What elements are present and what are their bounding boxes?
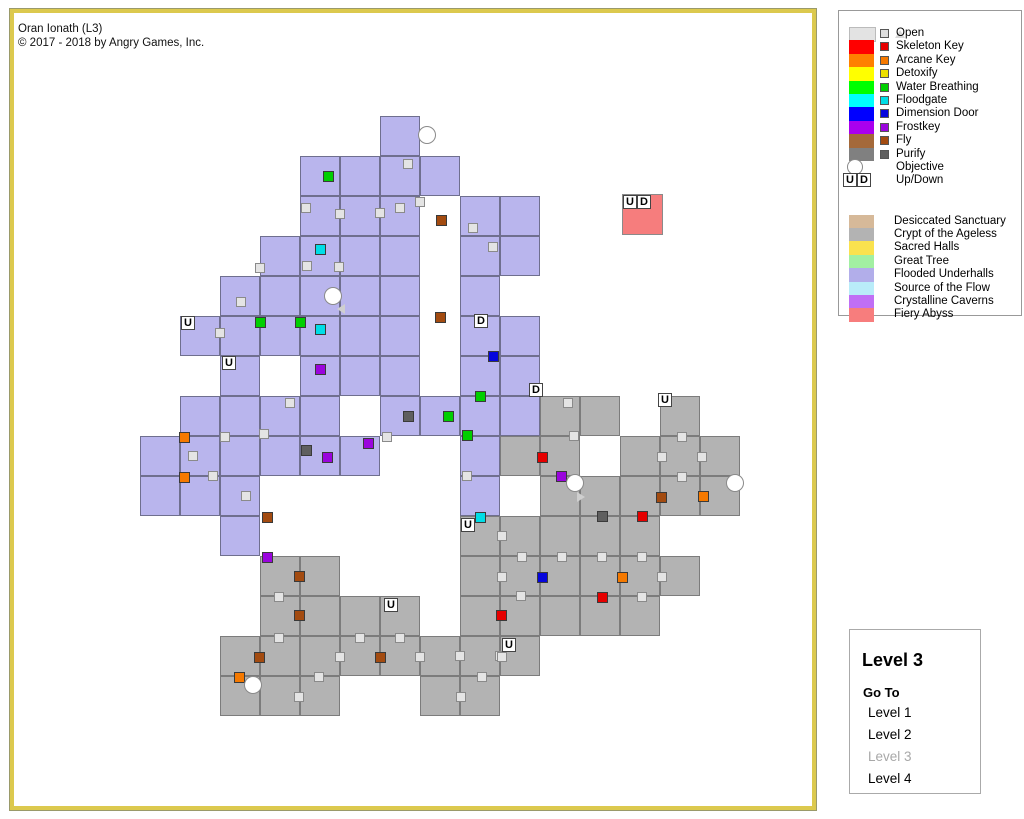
legend-swatch-small (880, 56, 889, 65)
legend-item-open: Open (839, 27, 1021, 40)
goto-level-4[interactable]: Level 4 (868, 768, 980, 790)
stair-label-u: U (502, 638, 516, 652)
door-open (697, 452, 707, 462)
map-room-flooded (260, 316, 300, 356)
legend-item-arcane-key: Arcane Key (839, 54, 1021, 67)
map-room-flooded (500, 236, 540, 276)
map-room-flooded (300, 396, 340, 436)
goto-level-3: Level 3 (868, 746, 980, 768)
legend-swatch-large (849, 54, 874, 67)
map-room-crypt (500, 436, 540, 476)
legend-area-swatch (849, 282, 874, 295)
legend-item-skeleton-key: Skeleton Key (839, 40, 1021, 53)
door-purify (403, 411, 414, 422)
map-room-flooded (500, 316, 540, 356)
map-room-flooded (340, 236, 380, 276)
door-purify (301, 445, 312, 456)
map-room-flooded (340, 156, 380, 196)
legend-area-section: Desiccated SanctuaryCrypt of the Ageless… (839, 188, 1021, 322)
door-open (517, 552, 527, 562)
legend-area-swatch (849, 268, 874, 281)
door-skeleton (637, 511, 648, 522)
legend-area-source-of-the-flow: Source of the Flow (839, 282, 1021, 295)
stair-label-u: U (384, 598, 398, 612)
legend-area-crypt-of-the-ageless: Crypt of the Ageless (839, 228, 1021, 241)
map-room-crypt (620, 516, 660, 556)
door-open (597, 552, 607, 562)
objective-circle (726, 474, 744, 492)
map-room-flooded (380, 116, 420, 156)
map-room-crypt (300, 636, 340, 676)
map-room-flooded (380, 396, 420, 436)
door-fly (656, 492, 667, 503)
door-open (355, 633, 365, 643)
legend-area-label: Fiery Abyss (894, 308, 953, 321)
legend-item-up-down: UDUp/Down (839, 174, 1021, 187)
map-room-flooded (140, 436, 180, 476)
map-room-flooded (380, 276, 420, 316)
stair-label-d: D (529, 383, 543, 397)
map-room-flooded (460, 436, 500, 476)
legend-item-label: Up/Down (896, 174, 943, 187)
legend-door-section: OpenSkeleton KeyArcane KeyDetoxifyWater … (839, 11, 1021, 188)
legend-swatch-large (849, 121, 874, 134)
legend-item-label: Floodgate (896, 94, 947, 107)
door-frostkey (315, 364, 326, 375)
map-room-flooded (420, 396, 460, 436)
door-dimension (488, 351, 499, 362)
door-open (456, 692, 466, 702)
map-room-crypt (420, 636, 460, 676)
door-arcane (179, 472, 190, 483)
door-arcane (179, 432, 190, 443)
legend-area-swatch (849, 215, 874, 228)
legend-item-label: Open (896, 27, 924, 40)
legend-area-swatch (849, 295, 874, 308)
door-skeleton (496, 610, 507, 621)
map-room-flooded (220, 476, 260, 516)
map-room-crypt (460, 596, 500, 636)
door-purify (597, 511, 608, 522)
legend-area-label: Desiccated Sanctuary (894, 215, 1006, 228)
legend-swatch-small (880, 69, 889, 78)
door-open (657, 452, 667, 462)
goto-level-2[interactable]: Level 2 (868, 724, 980, 746)
door-open (563, 398, 573, 408)
door-open (516, 591, 526, 601)
legend-swatch-small (880, 123, 889, 132)
door-arcane (617, 572, 628, 583)
map-room-flooded (300, 356, 340, 396)
legend-area-label: Crystalline Caverns (894, 295, 994, 308)
door-open (285, 398, 295, 408)
map-room-flooded (460, 476, 500, 516)
map-room-flooded (340, 196, 380, 236)
door-open (335, 209, 345, 219)
door-open (497, 572, 507, 582)
objective-circle (418, 126, 436, 144)
stair-label-u: U (181, 316, 195, 330)
map-room-crypt (300, 556, 340, 596)
door-water (443, 411, 454, 422)
door-open (395, 633, 405, 643)
door-open (557, 552, 567, 562)
legend-swatch-small (880, 109, 889, 118)
legend-item-frostkey: Frostkey (839, 121, 1021, 134)
legend-area-label: Sacred Halls (894, 241, 959, 254)
door-open (403, 159, 413, 169)
door-fly (436, 215, 447, 226)
legend-area-label: Flooded Underhalls (894, 268, 994, 281)
door-frostkey (322, 452, 333, 463)
door-open (334, 262, 344, 272)
map-room-flooded (300, 156, 340, 196)
legend-area-swatch (849, 228, 874, 241)
legend-item-fly: Fly (839, 134, 1021, 147)
map-room-flooded (460, 356, 500, 396)
map-room-flooded (340, 356, 380, 396)
map-room-flooded (380, 316, 420, 356)
legend-swatch-large (849, 107, 874, 120)
objective-circle (324, 287, 342, 305)
door-open (488, 242, 498, 252)
goto-level-1[interactable]: Level 1 (868, 702, 980, 724)
door-open (335, 652, 345, 662)
legend-swatch-small (880, 96, 889, 105)
legend-item-detoxify: Detoxify (839, 67, 1021, 80)
door-open (468, 223, 478, 233)
legend-swatch-small (880, 29, 889, 38)
map-room-flooded (260, 236, 300, 276)
door-skeleton (537, 452, 548, 463)
map-room-crypt (420, 676, 460, 716)
door-water (323, 171, 334, 182)
legend-area-desiccated-sanctuary: Desiccated Sanctuary (839, 215, 1021, 228)
door-water (475, 391, 486, 402)
legend-area-swatch (849, 308, 874, 321)
door-open (677, 472, 687, 482)
door-open (637, 592, 647, 602)
door-open (294, 692, 304, 702)
door-open (259, 429, 269, 439)
map-room-crypt (540, 516, 580, 556)
door-fly (294, 610, 305, 621)
map-room-crypt (580, 516, 620, 556)
stair-label-u: U (623, 195, 637, 209)
door-open (415, 197, 425, 207)
legend-area-label: Source of the Flow (894, 282, 990, 295)
map-room-flooded (380, 356, 420, 396)
map-room-crypt (620, 476, 660, 516)
up-box: U (843, 173, 857, 187)
dungeon-map-app: Oran Ionath (L3) © 2017 - 2018 by Angry … (0, 0, 1024, 819)
legend-swatch-large (849, 134, 874, 147)
legend-item-label: Dimension Door (896, 107, 978, 120)
legend-item-label: Detoxify (896, 67, 938, 80)
door-arcane (234, 672, 245, 683)
legend-area-swatch (849, 255, 874, 268)
map-room-flooded (300, 436, 340, 476)
door-floodgate (315, 324, 326, 335)
map-room-flooded (420, 156, 460, 196)
door-open (215, 328, 225, 338)
updown-icon: UD (843, 174, 871, 186)
door-water (295, 317, 306, 328)
map-room-crypt (540, 396, 580, 436)
map-room-flooded (140, 476, 180, 516)
map-room-crypt (540, 596, 580, 636)
map-room-crypt (460, 556, 500, 596)
map-room-flooded (380, 196, 420, 236)
goto-label: Go To (863, 685, 980, 700)
legend-item-water-breathing: Water Breathing (839, 81, 1021, 94)
legend-item-label: Frostkey (896, 121, 940, 134)
door-frostkey (262, 552, 273, 563)
legend-area-label: Great Tree (894, 255, 949, 268)
map-room-flooded (340, 436, 380, 476)
legend-swatch-small (880, 136, 889, 145)
objective-circle (244, 676, 262, 694)
door-open (208, 471, 218, 481)
legend-area-great-tree: Great Tree (839, 255, 1021, 268)
door-open (677, 432, 687, 442)
objective-circle (566, 474, 584, 492)
open-triangle-right (577, 492, 585, 502)
map-room-flooded (260, 436, 300, 476)
map-room-flooded (500, 396, 540, 436)
door-water (255, 317, 266, 328)
level-panel: Level 3 Go To Level 1Level 2Level 3Level… (849, 629, 981, 794)
map-room-crypt (300, 676, 340, 716)
legend-item-objective: Objective (839, 161, 1021, 174)
level-links: Level 1Level 2Level 3Level 4 (850, 702, 980, 790)
legend-swatch-large (849, 81, 874, 94)
door-open (241, 491, 251, 501)
map-room-flooded (220, 396, 260, 436)
door-open (301, 203, 311, 213)
door-open (395, 203, 405, 213)
stair-label-u: U (222, 356, 236, 370)
legend-area-fiery-abyss: Fiery Abyss (839, 308, 1021, 321)
door-fly (254, 652, 265, 663)
legend-item-floodgate: Floodgate (839, 94, 1021, 107)
map-room-crypt (460, 636, 500, 676)
door-open (236, 297, 246, 307)
door-frostkey (363, 438, 374, 449)
stair-label-u: U (461, 518, 475, 532)
door-water (462, 430, 473, 441)
door-open (375, 208, 385, 218)
map-room-flooded (380, 156, 420, 196)
door-floodgate (315, 244, 326, 255)
door-skeleton (597, 592, 608, 603)
legend-area-crystalline-caverns: Crystalline Caverns (839, 295, 1021, 308)
door-open (497, 652, 507, 662)
door-open (637, 552, 647, 562)
door-arcane (698, 491, 709, 502)
door-open (302, 261, 312, 271)
door-floodgate (475, 512, 486, 523)
map-room-flooded (500, 196, 540, 236)
map-room-flooded (460, 276, 500, 316)
door-fly (435, 312, 446, 323)
map-room-flooded (300, 196, 340, 236)
legend-area-flooded-underhalls: Flooded Underhalls (839, 268, 1021, 281)
map-room-crypt (620, 596, 660, 636)
door-fly (294, 571, 305, 582)
legend-swatch-large (849, 67, 874, 80)
legend-area-swatch (849, 241, 874, 254)
current-level-title: Level 3 (862, 650, 980, 671)
door-open (314, 672, 324, 682)
map-room-flooded (220, 276, 260, 316)
door-open (255, 263, 265, 273)
door-open (274, 592, 284, 602)
map-room-crypt (300, 596, 340, 636)
map-room-crypt (580, 476, 620, 516)
map-room-crypt (620, 436, 660, 476)
door-open (220, 432, 230, 442)
door-open (274, 633, 284, 643)
legend-area-label: Crypt of the Ageless (894, 228, 997, 241)
map-room-crypt (340, 596, 380, 636)
door-open (569, 431, 579, 441)
stair-label-d: D (637, 195, 651, 209)
door-open (415, 652, 425, 662)
legend-swatch-large (849, 40, 874, 53)
open-triangle-left (337, 304, 345, 314)
door-open (455, 651, 465, 661)
legend-item-label: Arcane Key (896, 54, 955, 67)
legend-area-sacred-halls: Sacred Halls (839, 241, 1021, 254)
map-room-flooded (180, 396, 220, 436)
map-room-flooded (260, 276, 300, 316)
legend-swatch-small (880, 83, 889, 92)
legend-item-label: Fly (896, 134, 911, 147)
map-room-flooded (220, 316, 260, 356)
legend-swatch-small (880, 150, 889, 159)
door-fly (262, 512, 273, 523)
stair-label-d: D (474, 314, 488, 328)
legend-swatch-small (880, 42, 889, 51)
door-open (188, 451, 198, 461)
legend-item-label: Water Breathing (896, 81, 979, 94)
map-room-crypt (580, 396, 620, 436)
map-room-flooded (340, 316, 380, 356)
door-open (462, 471, 472, 481)
stair-label-u: U (658, 393, 672, 407)
legend-panel: OpenSkeleton KeyArcane KeyDetoxifyWater … (838, 10, 1022, 316)
door-open (497, 531, 507, 541)
legend-item-label: Objective (896, 161, 944, 174)
down-box: D (857, 173, 871, 187)
map-room-flooded (300, 316, 340, 356)
door-dimension (537, 572, 548, 583)
legend-item-purify: Purify (839, 148, 1021, 161)
door-open (657, 572, 667, 582)
door-open (382, 432, 392, 442)
legend-item-label: Purify (896, 148, 925, 161)
map-room-flooded (380, 236, 420, 276)
map-room-crypt (580, 556, 620, 596)
map-room-flooded (340, 276, 380, 316)
door-open (477, 672, 487, 682)
map-room-crypt (460, 676, 500, 716)
map-room-flooded (220, 436, 260, 476)
door-fly (375, 652, 386, 663)
map-room-flooded (460, 196, 500, 236)
legend-swatch-large (849, 94, 874, 107)
map-room-flooded (220, 516, 260, 556)
legend-item-dimension-door: Dimension Door (839, 107, 1021, 120)
legend-item-label: Skeleton Key (896, 40, 964, 53)
